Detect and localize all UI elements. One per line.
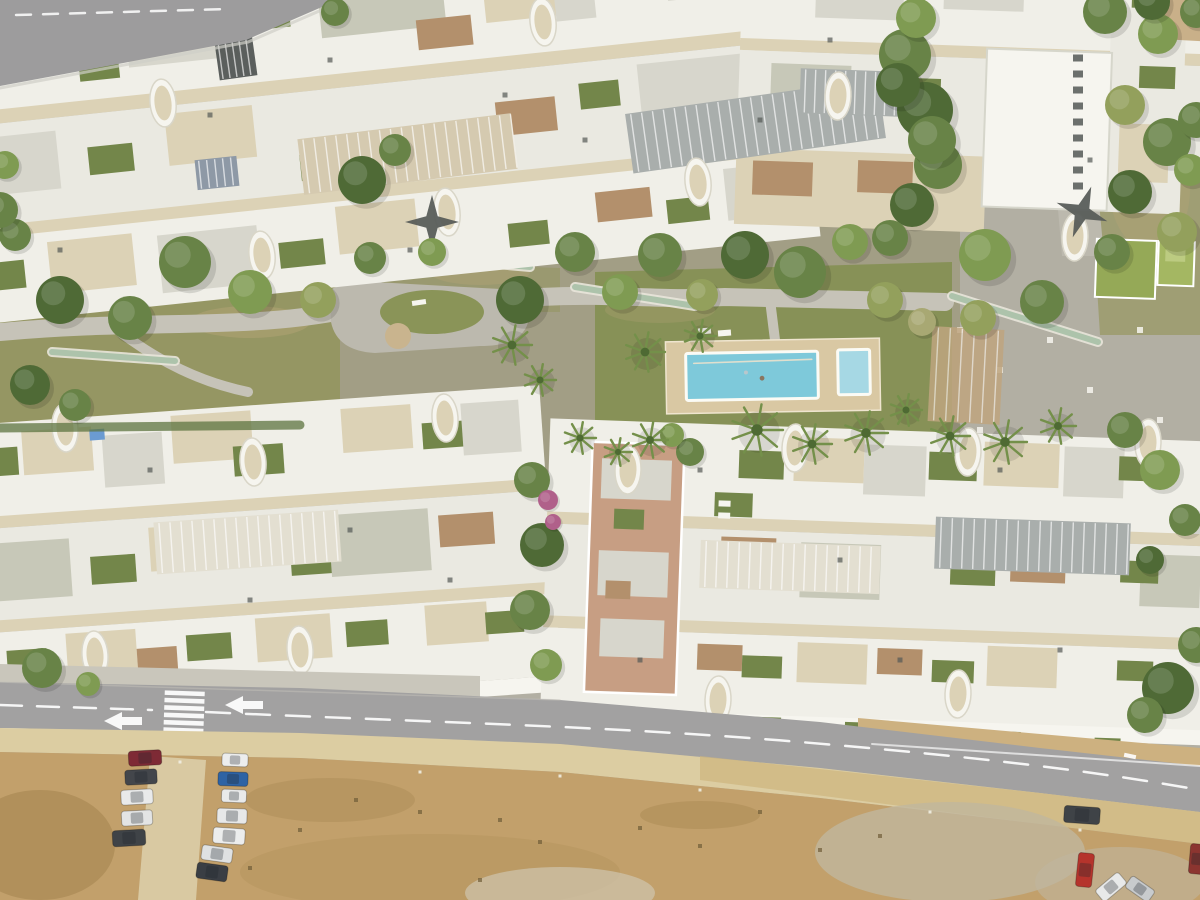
tree-highlight bbox=[895, 188, 917, 210]
rooftop-patches bbox=[578, 80, 620, 110]
tree-highlight bbox=[690, 283, 706, 299]
dirt-speckles bbox=[698, 844, 702, 848]
rooftop-patches bbox=[718, 512, 730, 518]
plaza-tiles bbox=[1157, 417, 1163, 423]
roof-loungers bbox=[1073, 151, 1083, 158]
sun-lounger bbox=[718, 330, 731, 337]
tree-highlight bbox=[876, 224, 894, 242]
rooftop-patches bbox=[460, 400, 521, 456]
rooftop-patches bbox=[595, 187, 653, 223]
tree-highlight bbox=[540, 492, 550, 502]
car-windshield bbox=[1078, 863, 1091, 878]
rooftop-patches bbox=[508, 220, 550, 248]
rooftop-patches bbox=[0, 260, 27, 293]
tree-highlight bbox=[501, 281, 525, 305]
palm-crown bbox=[508, 341, 517, 350]
rooftop-patches bbox=[863, 444, 927, 496]
tree-highlight bbox=[525, 528, 547, 550]
roof-loungers bbox=[1073, 87, 1083, 94]
tree-highlight bbox=[63, 393, 79, 409]
plaza-tiles bbox=[1047, 337, 1053, 343]
palm-crown bbox=[615, 449, 621, 455]
parked-car bbox=[112, 829, 146, 847]
tree-highlight bbox=[358, 246, 374, 262]
parked-car bbox=[1075, 852, 1094, 887]
rooftop-patches bbox=[345, 619, 389, 647]
tree-highlight bbox=[14, 369, 34, 389]
palm-crown bbox=[536, 376, 543, 383]
car-windshield bbox=[130, 791, 143, 803]
ellipse bbox=[245, 778, 415, 822]
sidewalk-poles bbox=[559, 775, 562, 778]
tree-highlight bbox=[113, 301, 135, 323]
aerial-photo bbox=[0, 0, 1200, 900]
rooftop-patches bbox=[90, 554, 137, 585]
dirt-speckles bbox=[418, 810, 422, 814]
rooftop-units bbox=[838, 558, 843, 563]
car-windshield bbox=[122, 832, 136, 845]
rooftop-units bbox=[208, 113, 213, 118]
rooftop-patches bbox=[340, 404, 413, 453]
palm-crown bbox=[641, 348, 650, 357]
parked-car bbox=[125, 769, 158, 786]
swimming-pool bbox=[686, 351, 819, 400]
tree-highlight bbox=[304, 286, 322, 304]
tree-highlight bbox=[726, 236, 750, 260]
tree-highlight bbox=[1148, 668, 1174, 694]
dirt-speckles bbox=[638, 826, 642, 830]
tree-highlight bbox=[1148, 123, 1172, 147]
parked-car bbox=[221, 789, 246, 803]
dirt-speckles bbox=[538, 840, 542, 844]
palm-crown bbox=[1000, 437, 1010, 447]
rooftop-patches bbox=[815, 0, 905, 21]
ellipse bbox=[640, 801, 760, 829]
roof-surface bbox=[928, 326, 1005, 425]
plaza-tiles bbox=[977, 427, 983, 433]
sidewalk-poles bbox=[699, 789, 702, 792]
car-windshield bbox=[229, 791, 239, 800]
terracotta-rooftop-patches bbox=[614, 509, 645, 530]
rooftop-patches bbox=[1139, 66, 1176, 89]
tree-highlight bbox=[836, 228, 854, 246]
plaza-tiles bbox=[1087, 387, 1093, 393]
palm-crown bbox=[646, 436, 654, 444]
tree-highlight bbox=[643, 238, 665, 260]
car-windshield bbox=[1191, 853, 1200, 866]
parked-car bbox=[218, 771, 248, 786]
roof-loungers bbox=[1073, 71, 1083, 78]
hedge-row bbox=[0, 425, 300, 428]
rooftop-units bbox=[583, 138, 588, 143]
tree-highlight bbox=[1173, 508, 1189, 524]
dirt-speckles bbox=[478, 878, 482, 882]
tree-highlight bbox=[1161, 216, 1181, 236]
rooftop-patches bbox=[438, 512, 495, 548]
parked-car bbox=[121, 810, 153, 827]
tree-highlight bbox=[1139, 549, 1153, 563]
car-windshield bbox=[222, 830, 236, 843]
tree-highlight bbox=[1144, 454, 1164, 474]
rooftop-units bbox=[1058, 648, 1063, 653]
tree-highlight bbox=[165, 242, 191, 268]
tree-highlight bbox=[881, 68, 903, 90]
rooftop-patches bbox=[0, 538, 73, 602]
tree-highlight bbox=[547, 516, 555, 524]
rooftop-patches bbox=[328, 508, 432, 577]
paver-circle bbox=[385, 323, 411, 349]
palm-crown bbox=[861, 428, 871, 438]
tree-highlight bbox=[900, 2, 920, 22]
palm-crown bbox=[946, 432, 955, 441]
dirt-speckles bbox=[878, 834, 882, 838]
sidewalk-poles bbox=[419, 771, 422, 774]
rooftop-patches bbox=[186, 632, 233, 661]
tree-highlight bbox=[41, 281, 65, 305]
dirt-speckles bbox=[498, 818, 502, 822]
palm-crown bbox=[902, 406, 909, 413]
tree-highlight bbox=[421, 241, 435, 255]
tree-highlight bbox=[383, 138, 399, 154]
rooftop-units bbox=[828, 38, 833, 43]
rooftop-patches bbox=[752, 160, 813, 196]
tree-highlight bbox=[324, 1, 338, 15]
palm-crown bbox=[751, 424, 762, 435]
sidewalk-poles bbox=[179, 761, 182, 764]
glass-atrium-roof bbox=[934, 517, 1131, 576]
rooftop-units bbox=[248, 598, 253, 603]
palm-crown bbox=[808, 440, 817, 449]
tree-highlight bbox=[606, 278, 624, 296]
tree-highlight bbox=[965, 235, 991, 261]
rooftop-units bbox=[1088, 158, 1093, 163]
palm-crown bbox=[696, 332, 703, 339]
roof-loungers bbox=[1073, 183, 1083, 190]
tree-highlight bbox=[1098, 238, 1116, 256]
rooftop-patches bbox=[742, 655, 783, 678]
tree-highlight bbox=[1182, 106, 1200, 124]
tree-highlight bbox=[233, 275, 255, 297]
parked-car bbox=[121, 789, 154, 806]
parked-car bbox=[1063, 805, 1100, 824]
rooftop-patches bbox=[424, 601, 489, 645]
rooftop-units bbox=[348, 528, 353, 533]
palm-crown bbox=[1054, 422, 1062, 430]
rooftop-units bbox=[998, 468, 1003, 473]
community-building bbox=[982, 49, 1112, 211]
dirt-speckles bbox=[298, 828, 302, 832]
rooftop-patches bbox=[278, 238, 325, 269]
sidewalk-poles bbox=[1079, 829, 1082, 832]
palm-crown bbox=[576, 434, 583, 441]
plaza-tiles bbox=[1137, 327, 1143, 333]
rooftop-patches bbox=[87, 143, 135, 176]
car-windshield bbox=[226, 810, 238, 821]
rooftop-patches bbox=[0, 447, 19, 478]
roof-loungers bbox=[1073, 135, 1083, 142]
kids-pool bbox=[838, 349, 871, 395]
tree-highlight bbox=[1113, 175, 1135, 197]
pool-access-path bbox=[770, 300, 775, 340]
terracotta-rooftop-patches bbox=[605, 580, 631, 599]
rooftop-units bbox=[898, 658, 903, 663]
tree-highlight bbox=[26, 652, 46, 672]
parked-car bbox=[128, 750, 162, 767]
tree-highlight bbox=[343, 161, 367, 185]
dirt-speckles bbox=[758, 810, 762, 814]
aerial-photo-canvas bbox=[0, 0, 1200, 900]
roof-loungers bbox=[1073, 55, 1083, 62]
dirt-speckles bbox=[354, 798, 358, 802]
tree-highlight bbox=[534, 653, 550, 669]
rooftop-units bbox=[638, 658, 643, 663]
rooftop-units bbox=[408, 248, 413, 253]
tree-highlight bbox=[79, 675, 91, 687]
parked-car bbox=[222, 753, 248, 767]
rooftop-patches bbox=[1063, 446, 1125, 498]
tree-highlight bbox=[1111, 416, 1129, 434]
rooftop-patches bbox=[796, 642, 867, 684]
roof-loungers bbox=[1073, 119, 1083, 126]
rooftop-patches bbox=[102, 432, 165, 488]
tree-highlight bbox=[1131, 701, 1149, 719]
rooftop-units bbox=[58, 248, 63, 253]
rooftop-patches bbox=[416, 15, 474, 51]
car-windshield bbox=[230, 755, 241, 764]
rooftop-patches bbox=[986, 646, 1057, 688]
atrium-roof bbox=[699, 540, 881, 594]
rooftop-patches bbox=[697, 644, 743, 672]
tree-highlight bbox=[871, 286, 889, 304]
car-windshield bbox=[205, 865, 219, 879]
wood-pergola bbox=[928, 326, 1005, 425]
car-windshield bbox=[138, 752, 152, 764]
tree-highlight bbox=[1178, 158, 1194, 174]
rooftop-patches bbox=[718, 500, 730, 506]
rooftop-units bbox=[328, 58, 333, 63]
tree-highlight bbox=[913, 121, 937, 145]
tree-highlight bbox=[964, 304, 982, 322]
parked-car bbox=[1188, 843, 1200, 874]
rooftop-units bbox=[503, 93, 508, 98]
tree-highlight bbox=[1025, 285, 1047, 307]
car-windshield bbox=[134, 771, 147, 783]
tree-highlight bbox=[514, 594, 534, 614]
car-windshield bbox=[131, 812, 144, 824]
car-windshield bbox=[210, 848, 224, 861]
tree-highlight bbox=[911, 311, 925, 325]
roof-loungers bbox=[1073, 167, 1083, 174]
parked-car bbox=[217, 808, 248, 824]
dirt-speckles bbox=[248, 866, 252, 870]
solar-panel bbox=[195, 156, 240, 190]
rooftop-units bbox=[758, 118, 763, 123]
rooftop-units bbox=[148, 468, 153, 473]
car-windshield bbox=[1074, 808, 1089, 822]
sidewalk-poles bbox=[929, 811, 932, 814]
tree-highlight bbox=[780, 252, 806, 278]
rooftop-units bbox=[448, 578, 453, 583]
tree-highlight bbox=[885, 35, 911, 61]
tree-highlight bbox=[1184, 0, 1200, 16]
car-windshield bbox=[227, 774, 239, 784]
tree-highlight bbox=[559, 236, 579, 256]
dirt-speckles bbox=[818, 848, 822, 852]
tree-highlight bbox=[1109, 89, 1129, 109]
terracotta-rooftop-patches bbox=[599, 618, 664, 658]
tree-highlight bbox=[518, 466, 536, 484]
roof-loungers bbox=[1073, 103, 1083, 110]
parked-car bbox=[212, 827, 245, 845]
tree-highlight bbox=[1182, 631, 1200, 649]
rooftop-units bbox=[698, 468, 703, 473]
